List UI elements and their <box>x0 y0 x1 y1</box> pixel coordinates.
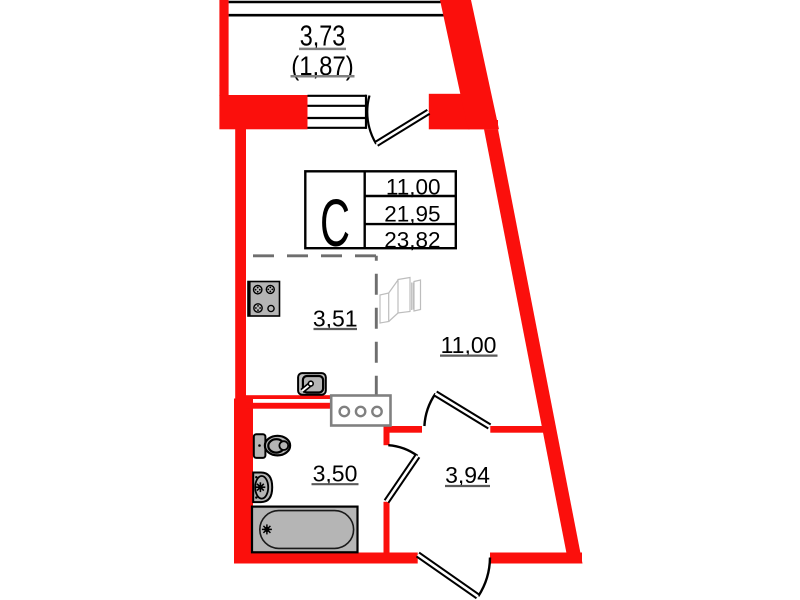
svg-text:11,00: 11,00 <box>441 332 497 358</box>
svg-text:3,94: 3,94 <box>445 462 490 488</box>
svg-text:21,95: 21,95 <box>384 202 440 227</box>
svg-text:3,51: 3,51 <box>313 305 358 331</box>
svg-text:11,00: 11,00 <box>386 175 441 200</box>
svg-text:С: С <box>320 186 350 261</box>
svg-text:23,82: 23,82 <box>384 228 440 253</box>
svg-text:3,50: 3,50 <box>313 460 358 486</box>
